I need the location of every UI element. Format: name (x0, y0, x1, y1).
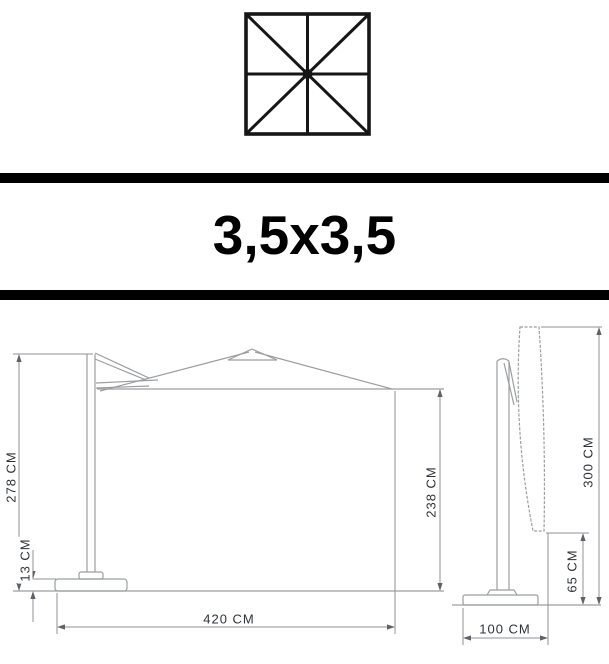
dim-closed-height-label: 300 CM (581, 434, 596, 490)
square-parasol-top-view-icon (0, 0, 609, 664)
divider-bar-top (0, 173, 609, 183)
dim-clearance-height-label: 238 CM (424, 464, 439, 520)
closed-parasol-pole (487, 359, 517, 595)
divider-bar-bottom (0, 290, 609, 300)
closed-parasol-arm (504, 362, 517, 405)
open-parasol-arm (95, 353, 158, 388)
closed-parasol-canopy (518, 327, 544, 531)
parasol-open-side-view (13, 349, 444, 634)
size-title: 3,5x3,5 (0, 201, 609, 269)
open-parasol-canopy (97, 349, 444, 391)
canopy-top-view (246, 14, 369, 134)
dim-total-width-label: 420 CM (201, 612, 257, 627)
parasol-dimension-sheet: 3,5x3,5 278 CM 13 CM 238 CM 420 CM 300 C… (0, 0, 609, 664)
closed-parasol-base (463, 595, 538, 605)
dim-base-width-label: 100 CM (477, 622, 533, 637)
canopy-hub-dot (303, 69, 313, 79)
dim-base-height-label: 13 CM (18, 536, 33, 583)
dim-pole-height-label: 278 CM (4, 449, 19, 505)
open-parasol-base (55, 579, 127, 591)
open-dimension-lines (13, 354, 443, 634)
parasol-closed-side-view (452, 327, 602, 645)
dim-ground-clearance-label: 65 CM (565, 547, 580, 594)
